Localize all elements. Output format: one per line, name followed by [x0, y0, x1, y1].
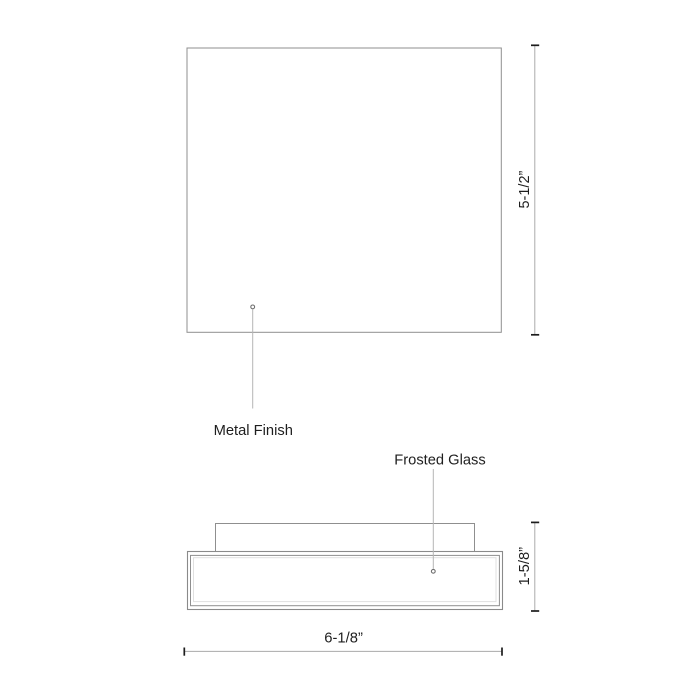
svg-text:1-5/8”: 1-5/8” — [516, 547, 533, 586]
svg-text:Metal Finish: Metal Finish — [214, 422, 293, 439]
svg-text:Frosted Glass: Frosted Glass — [394, 451, 485, 468]
svg-text:6-1/8”: 6-1/8” — [324, 629, 363, 646]
svg-text:5-1/2”: 5-1/2” — [516, 171, 533, 209]
